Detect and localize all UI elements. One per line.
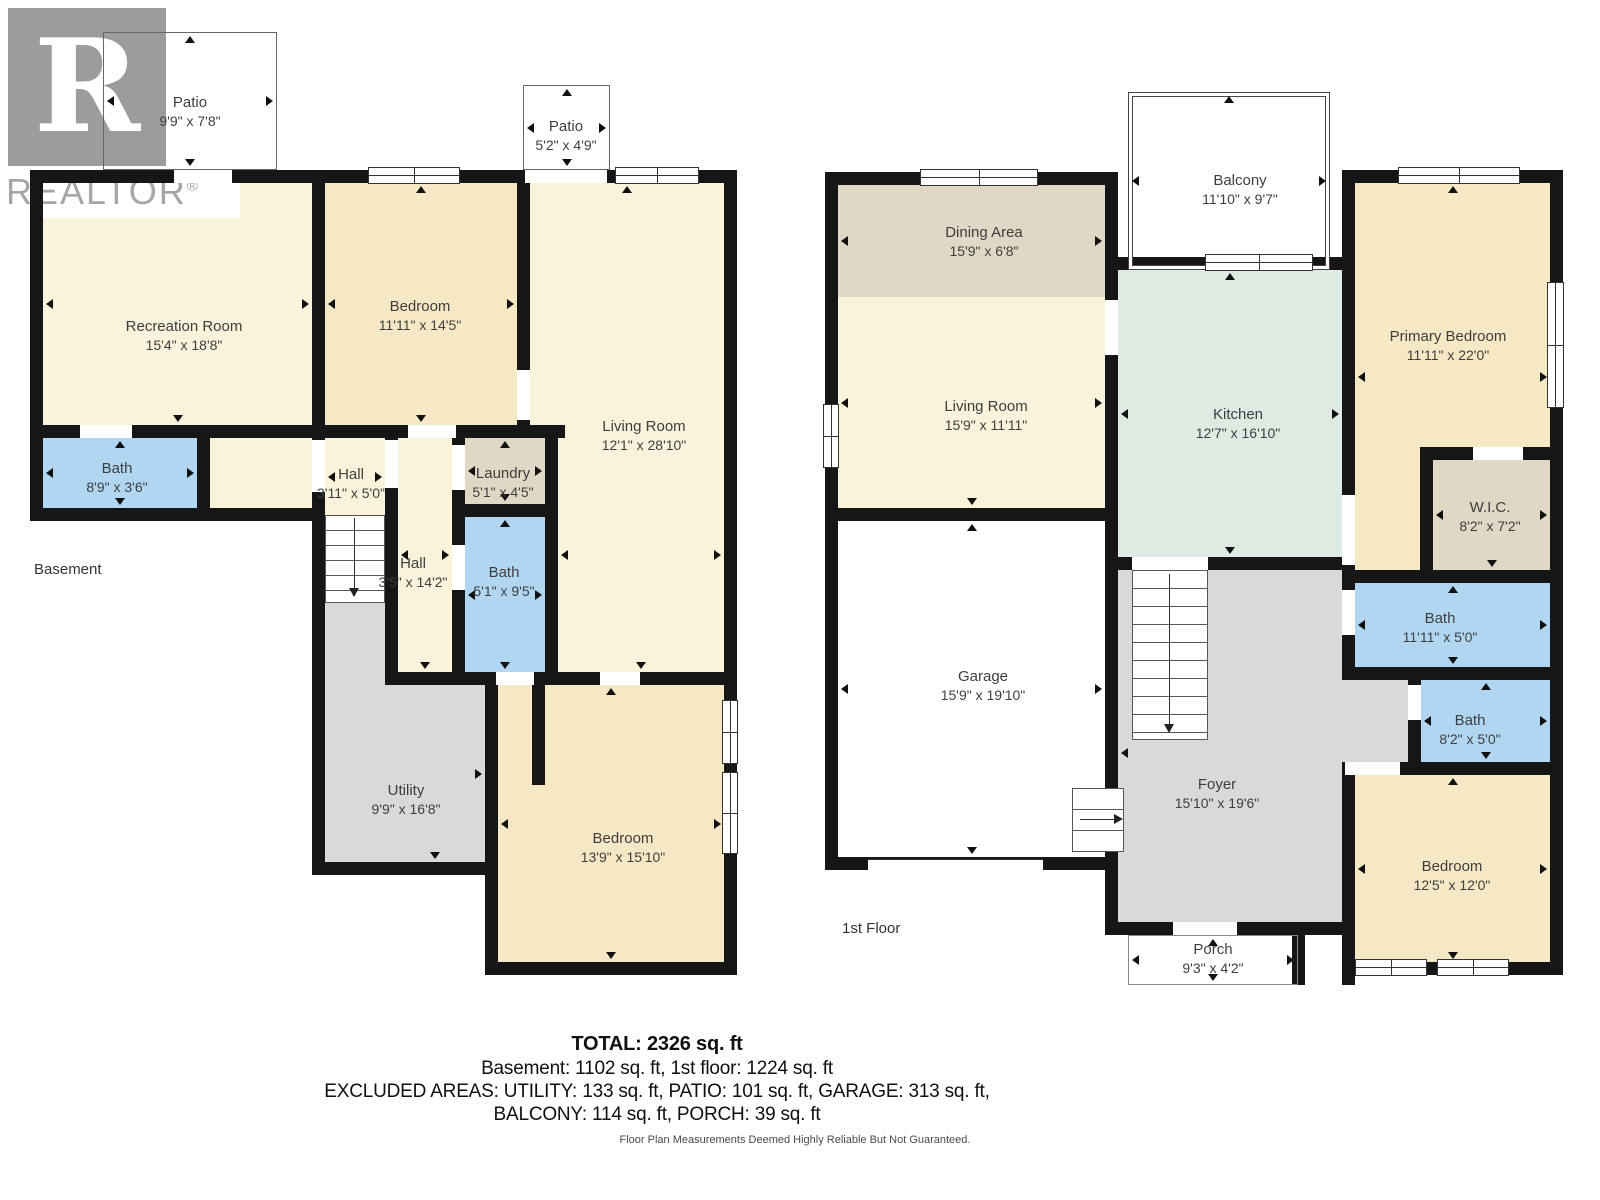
door-opening (1345, 762, 1400, 775)
total-area: TOTAL: 2326 sq. ft (257, 1032, 1057, 1057)
room-label-bath-small: Bath 8'9" x 3'6" (86, 460, 147, 496)
door-opening (408, 425, 456, 438)
wall (485, 672, 498, 975)
dimension-arrow (562, 159, 572, 166)
room-label-wic: W.I.C. 8'2" x 7'2" (1459, 499, 1520, 535)
dimension-arrow (185, 159, 195, 166)
dimension-arrow (115, 441, 125, 448)
dimension-arrow (1121, 748, 1128, 758)
window (722, 700, 738, 764)
dimension-arrow (266, 96, 273, 106)
room-name: Garage (941, 668, 1026, 686)
dimension-arrow (606, 952, 616, 959)
dimension-arrow (107, 96, 114, 106)
dimension-arrow (1424, 716, 1431, 726)
window (823, 404, 839, 468)
dimension-arrow (1540, 510, 1547, 520)
dimension-arrow (535, 590, 542, 600)
room-label-primary: Primary Bedroom 11'11" x 22'0" (1390, 328, 1507, 364)
window (1437, 959, 1509, 976)
dimension-arrow (1121, 409, 1128, 419)
dimension-arrow (1481, 683, 1491, 690)
window (615, 167, 699, 184)
room-label-patio-large: Patio 9'9" x 7'8" (159, 94, 220, 130)
window (1547, 282, 1564, 408)
room-dims: 9'3" x 4'2" (1182, 959, 1243, 977)
stair-direction-arrow (1114, 814, 1128, 824)
garage-door-opening (868, 859, 1043, 870)
dimension-arrow (841, 236, 848, 246)
room-utility (385, 685, 485, 862)
door-opening (452, 445, 465, 490)
wall (485, 962, 737, 975)
room-name: Living Room (944, 398, 1027, 416)
door-opening (600, 672, 640, 685)
room-label-living-first: Living Room 15'9" x 11'11" (944, 398, 1027, 434)
room-label-kitchen: Kitchen 12'7" x 16'10" (1196, 406, 1281, 442)
dimension-arrow (1540, 864, 1547, 874)
room-dims: 15'9" x 11'11" (944, 416, 1027, 434)
door-opening (174, 170, 232, 183)
dimension-arrow (416, 415, 426, 422)
room-name: W.I.C. (1459, 499, 1520, 517)
wall (452, 504, 558, 517)
room-dims: 11'11" x 22'0" (1390, 346, 1507, 364)
room-dims: 5'2" x 4'9" (535, 136, 596, 154)
dimension-arrow (1358, 864, 1365, 874)
room-dims: 12'7" x 16'10" (1196, 424, 1281, 442)
room-dims: 15'4" x 18'8" (126, 336, 243, 354)
dimension-arrow (967, 524, 977, 531)
room-living-basement-upper (530, 183, 724, 438)
room-name: Laundry (472, 465, 533, 483)
door-opening (1105, 300, 1118, 355)
room-dims: 11'11" x 14'5" (379, 316, 462, 334)
dimension-arrow (1319, 176, 1326, 186)
room-dims: 9'9" x 16'8" (372, 800, 441, 818)
wall (1342, 667, 1563, 680)
room-name: Porch (1182, 941, 1243, 959)
dimension-arrow (507, 299, 514, 309)
door-opening (1342, 590, 1355, 635)
dimension-arrow (46, 299, 53, 309)
dimension-arrow (420, 662, 430, 669)
room-name: Living Room (602, 418, 687, 436)
dimension-arrow (1358, 372, 1365, 382)
door-opening (496, 672, 534, 685)
dimension-arrow (967, 847, 977, 854)
dimension-arrow (562, 89, 572, 96)
floor-label-basement: Basement (34, 561, 102, 578)
stair-direction-line (1169, 574, 1170, 724)
room-dims: 5'1" x 4'5" (472, 483, 533, 501)
dimension-arrow (1358, 620, 1365, 630)
wall (825, 172, 838, 870)
stairs-main (1132, 570, 1208, 740)
room-label-bedroom2-basement: Bedroom 13'9" x 15'10" (581, 830, 666, 866)
room-label-hall-small: Hall 3'11" x 5'0" (317, 466, 385, 502)
window (920, 169, 1038, 186)
room-name: Bath (1403, 610, 1478, 628)
room-name: Bedroom (379, 298, 462, 316)
dimension-arrow (115, 498, 125, 505)
room-dims: 15'9" x 6'8" (945, 242, 1023, 260)
window (1205, 254, 1313, 271)
room-rec-alcove (210, 438, 312, 508)
excluded-areas-line2: BALCONY: 114 sq. ft, PORCH: 39 sq. ft (257, 1103, 1057, 1126)
stair-direction-arrow (349, 588, 359, 602)
dimension-arrow (430, 852, 440, 859)
wall (724, 170, 737, 975)
door-opening (517, 370, 530, 420)
room-name: Bedroom (1414, 858, 1491, 876)
dimension-arrow (1332, 409, 1339, 419)
wall (30, 170, 43, 521)
room-dims: 13'9" x 15'10" (581, 848, 666, 866)
dimension-arrow (1448, 657, 1458, 664)
room-name: Balcony (1202, 172, 1278, 190)
dimension-arrow (475, 769, 482, 779)
room-label-balcony: Balcony 11'10" x 9'7" (1202, 172, 1278, 208)
window (1355, 959, 1427, 976)
floor-label-first: 1st Floor (842, 920, 900, 937)
dimension-arrow (302, 299, 309, 309)
room-label-hall-long: Hall 3'5" x 14'2" (379, 555, 448, 591)
dimension-arrow (841, 398, 848, 408)
room-name: Recreation Room (126, 318, 243, 336)
room-name: Hall (317, 466, 385, 484)
door-opening (1132, 557, 1208, 570)
room-name: Patio (159, 94, 220, 112)
dimension-arrow (500, 441, 510, 448)
dimension-arrow (622, 186, 632, 193)
room-name: Bath (1439, 712, 1500, 730)
room-label-living-basement: Living Room 12'1" x 28'10" (602, 418, 687, 454)
dimension-arrow (501, 819, 508, 829)
door-opening (525, 170, 607, 183)
door-opening (1342, 495, 1355, 565)
dimension-arrow (1225, 547, 1235, 554)
wall (197, 425, 210, 521)
door-opening (385, 440, 398, 488)
wall (30, 508, 325, 521)
dimension-arrow (187, 468, 194, 478)
dimension-arrow (1132, 955, 1139, 965)
room-label-utility: Utility 9'9" x 16'8" (372, 782, 441, 818)
room-name: Bath (473, 564, 534, 582)
dimension-arrow (1487, 560, 1497, 567)
room-label-bath-top: Bath 11'11" x 5'0" (1403, 610, 1478, 646)
wall (312, 862, 498, 875)
dimension-arrow (1448, 186, 1458, 193)
room-name: Hall (379, 555, 448, 573)
dimension-arrow (173, 415, 183, 422)
room-label-porch: Porch 9'3" x 4'2" (1182, 941, 1243, 977)
room-dims: 8'9" x 3'6" (86, 478, 147, 496)
room-name: Dining Area (945, 224, 1023, 242)
dimension-arrow (1540, 620, 1547, 630)
wall (825, 508, 1118, 521)
room-dims: 11'11" x 5'0" (1403, 628, 1478, 646)
dimension-arrow (1225, 273, 1235, 280)
dimension-arrow (1540, 716, 1547, 726)
room-dims: 15'9" x 19'10" (941, 686, 1026, 704)
door-opening (452, 545, 465, 590)
room-utility-west (325, 603, 385, 862)
dimension-arrow (1436, 510, 1443, 520)
room-label-bath-main: Bath 5'1" x 9'5" (473, 564, 534, 600)
dimension-arrow (636, 662, 646, 669)
window (1398, 167, 1520, 184)
dimension-arrow (527, 123, 534, 133)
wall (385, 672, 737, 685)
dimension-arrow (714, 819, 721, 829)
wall (312, 170, 325, 875)
dimension-arrow (1540, 372, 1547, 382)
stair-direction-arrow (1164, 724, 1174, 738)
dimension-arrow (185, 36, 195, 43)
room-label-patio-small: Patio 5'2" x 4'9" (535, 118, 596, 154)
wall (1342, 570, 1563, 583)
wall (1342, 775, 1355, 985)
room-dims: 8'2" x 7'2" (1459, 517, 1520, 535)
dimension-arrow (841, 684, 848, 694)
stair-direction-line (354, 518, 355, 588)
room-dims: 3'5" x 14'2" (379, 573, 448, 591)
floor-areas: Basement: 1102 sq. ft, 1st floor: 1224 s… (257, 1057, 1057, 1080)
room-label-laundry: Laundry 5'1" x 4'5" (472, 465, 533, 501)
door-opening (1473, 447, 1523, 460)
room-label-foyer: Foyer 15'10" x 19'6" (1175, 776, 1260, 812)
dimension-arrow (967, 498, 977, 505)
room-label-bedroom-first: Bedroom 12'5" x 12'0" (1414, 858, 1491, 894)
dimension-arrow (46, 468, 53, 478)
dimension-arrow (1448, 952, 1458, 959)
wall (1105, 521, 1118, 935)
room-label-recreation: Recreation Room 15'4" x 18'8" (126, 318, 243, 354)
room-dims: 12'5" x 12'0" (1414, 876, 1491, 894)
room-dims: 12'1" x 28'10" (602, 436, 687, 454)
room-label-bedroom-basement: Bedroom 11'11" x 14'5" (379, 298, 462, 334)
dimension-arrow (1448, 586, 1458, 593)
disclaimer: Floor Plan Measurements Deemed Highly Re… (495, 1134, 1095, 1146)
dimension-arrow (500, 662, 510, 669)
room-label-bath-mid: Bath 8'2" x 5'0" (1439, 712, 1500, 748)
room-name: Primary Bedroom (1390, 328, 1507, 346)
dimension-arrow (416, 186, 426, 193)
stair-direction-line (1080, 819, 1114, 820)
dimension-arrow (1224, 96, 1234, 103)
dimension-arrow (1132, 176, 1139, 186)
dimension-arrow (1095, 236, 1102, 246)
wall (545, 425, 558, 685)
room-name: Bath (86, 460, 147, 478)
room-name: Kitchen (1196, 406, 1281, 424)
dimension-arrow (561, 550, 568, 560)
room-label-dining: Dining Area 15'9" x 6'8" (945, 224, 1023, 260)
room-dims: 15'10" x 19'6" (1175, 794, 1260, 812)
room-dims: 9'9" x 7'8" (159, 112, 220, 130)
dimension-arrow (1448, 778, 1458, 785)
dimension-arrow (714, 550, 721, 560)
room-dims: 3'11" x 5'0" (317, 484, 385, 502)
dimension-arrow (606, 688, 616, 695)
room-name: Foyer (1175, 776, 1260, 794)
room-label-garage: Garage 15'9" x 19'10" (941, 668, 1026, 704)
room-recreation (43, 183, 312, 425)
wall (1420, 447, 1433, 570)
door-opening (1408, 685, 1421, 720)
foyer-corridor (1342, 680, 1408, 762)
dimension-arrow (599, 123, 606, 133)
wall (30, 425, 325, 438)
room-dims: 11'10" x 9'7" (1202, 190, 1278, 208)
window (722, 772, 738, 854)
dimension-arrow (500, 520, 510, 527)
dimension-arrow (535, 466, 542, 476)
room-dims: 5'1" x 9'5" (473, 582, 534, 600)
room-name: Patio (535, 118, 596, 136)
window (368, 167, 460, 184)
door-opening (1173, 922, 1237, 935)
dimension-arrow (1481, 752, 1491, 759)
area-summary: TOTAL: 2326 sq. ft Basement: 1102 sq. ft… (257, 1032, 1057, 1126)
dimension-arrow (328, 299, 335, 309)
room-name: Utility (372, 782, 441, 800)
room-living-basement-lower (558, 438, 724, 672)
wall (532, 685, 545, 785)
excluded-areas-line1: EXCLUDED AREAS: UTILITY: 133 sq. ft, PAT… (257, 1080, 1057, 1103)
dimension-arrow (1287, 955, 1294, 965)
door-opening (80, 425, 132, 438)
floor-plan-page: R REALTOR® (0, 0, 1600, 1200)
dimension-arrow (1095, 684, 1102, 694)
dimension-arrow (1095, 398, 1102, 408)
room-name: Bedroom (581, 830, 666, 848)
room-dims: 8'2" x 5'0" (1439, 730, 1500, 748)
